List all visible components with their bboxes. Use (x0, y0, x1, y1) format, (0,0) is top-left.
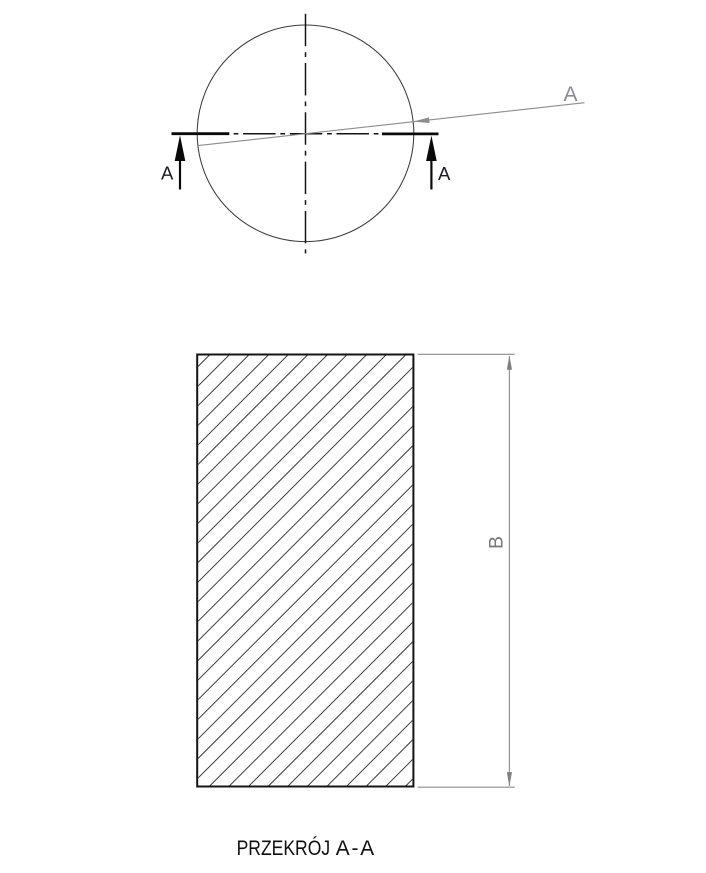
svg-text:PRZEKRÓJ: PRZEKRÓJ (237, 837, 331, 860)
svg-text:A-A: A-A (336, 837, 376, 860)
svg-text:A: A (563, 83, 577, 106)
svg-text:A: A (161, 163, 174, 184)
svg-text:B: B (486, 536, 508, 549)
svg-text:A: A (438, 163, 451, 184)
